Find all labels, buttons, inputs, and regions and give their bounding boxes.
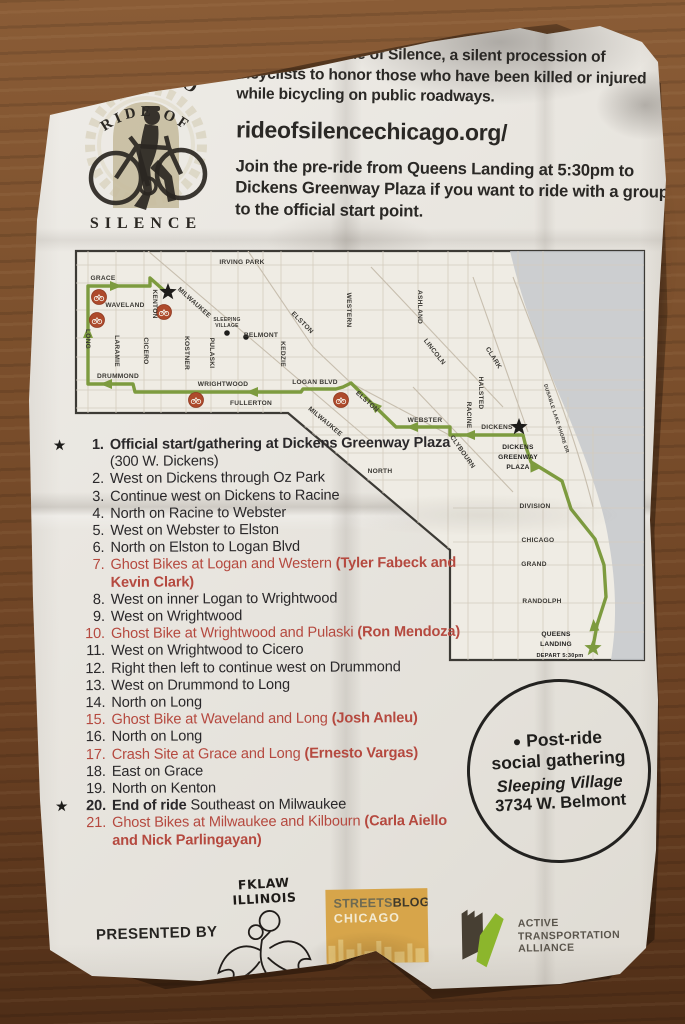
- step-number: 19.: [77, 781, 112, 798]
- step-number: 11.: [76, 643, 111, 660]
- website-url: rideofsilencechicago.org/: [236, 116, 672, 148]
- step-text: East on Grace: [112, 762, 475, 781]
- fklaw-logo-text: FKLAW ILLINOIS: [203, 873, 324, 909]
- post-ride-circle: ●Post-ride social gathering Sleeping Vil…: [462, 674, 655, 867]
- map-street-label: RACINE: [465, 402, 472, 429]
- ata-logo-icon: [457, 901, 508, 974]
- step-number: 15.: [76, 712, 111, 729]
- logo-silence: SILENCE: [90, 215, 202, 232]
- map-street-label: VILLAGE: [215, 323, 239, 329]
- map-street-label: WAVELAND: [105, 302, 144, 309]
- map-street-label: CICERO: [142, 337, 149, 364]
- map-street-label: KOSTNER: [183, 336, 190, 370]
- step-text: West on Drummond to Long: [111, 676, 474, 695]
- map-street-label: PULASKI: [208, 338, 215, 369]
- step-text: North on Elston to Logan Blvd: [110, 538, 473, 557]
- post-ride-line2: social gathering: [491, 747, 626, 775]
- map-street-label: BELMONT: [244, 332, 278, 339]
- map-street-label: ASHLAND: [416, 290, 423, 324]
- step-text: Crash Site at Grace and Long (Ernesto Va…: [112, 744, 475, 763]
- step-text: Ghost Bike at Waveland and Long (Josh An…: [111, 710, 474, 729]
- step-text: Continue west on Dickens to Racine: [110, 486, 473, 505]
- step-number: 13.: [76, 678, 111, 695]
- map-place-label: GREENWAY: [498, 454, 538, 461]
- map-place-label: PLAZA: [506, 464, 529, 471]
- ghost-bike-marker: [90, 313, 105, 328]
- map-street-label: WEBSTER: [408, 417, 443, 424]
- step-text: West on Webster to Elston: [110, 521, 473, 540]
- step-number: 5.: [75, 523, 110, 540]
- step-number: 21.: [77, 815, 112, 832]
- map-street-label: LARAMIE: [113, 335, 120, 367]
- fklaw-logo: FKLAW ILLINOIS: [204, 875, 326, 1012]
- bullet-dot-icon: ●: [512, 733, 521, 749]
- streetsblog-chicago: CHICAGO: [326, 909, 428, 926]
- pre-ride-paragraph: Join the pre-ride from Queens Landing at…: [235, 155, 672, 225]
- ghost-bike-marker: [189, 393, 204, 408]
- step-text: Right then left to continue west on Drum…: [111, 658, 474, 677]
- step-text: West on inner Logan to Wrightwood: [111, 590, 474, 609]
- step-number: 3.: [75, 489, 110, 506]
- step-number: 12.: [76, 661, 111, 678]
- map-street-label: WRIGHTWOOD: [198, 381, 248, 388]
- step-number: 14.: [76, 695, 111, 712]
- step-text: North on Long: [111, 693, 474, 712]
- header-text-block: The Chicago Ride of Silence, a silent pr…: [235, 43, 673, 224]
- map-place-label: DICKENS: [502, 444, 534, 451]
- map-street-label: GRACE: [90, 275, 115, 282]
- step-text: West on Wrightwood to Cicero: [111, 641, 474, 660]
- skyline-graphic: [326, 936, 428, 964]
- streetsblog-logo: STREETSBLOG CHICAGO: [325, 888, 428, 964]
- route-step: 7.Ghost Bikes at Logan and Western (Tyle…: [53, 555, 473, 592]
- active-transportation-alliance-logo: ACTIVE TRANSPORTATION ALLIANCE: [457, 898, 658, 973]
- start-end-star-icon: ★: [55, 798, 77, 815]
- step-number: 1.: [75, 437, 110, 454]
- step-number: 17.: [77, 747, 112, 764]
- poi-dot: [224, 330, 230, 336]
- turn-by-turn-list: ★1.Official start/gathering at Dickens G…: [53, 435, 476, 850]
- map-place-label: LANDING: [540, 641, 572, 648]
- step-number: 4.: [75, 506, 110, 523]
- logo-arc-chicago: CHICAGO: [89, 62, 204, 99]
- map-street-label: GRAND: [521, 561, 546, 568]
- flyer-paper: CHICAGO RIDE OF SILENCE The Chicago Ride…: [0, 0, 685, 1024]
- step-text: End of ride Southeast on Milwaukee: [112, 796, 475, 815]
- map-street-label: IRVING PARK: [219, 259, 264, 266]
- step-text: Ghost Bikes at Milwaukee and Kilbourn (C…: [112, 813, 475, 850]
- map-street-label: LOGAN BLVD: [292, 379, 338, 386]
- step-text: Ghost Bikes at Logan and Western (Tyler …: [110, 555, 473, 592]
- step-number: 8.: [76, 592, 111, 609]
- step-number: 2.: [75, 471, 110, 488]
- map-street-label: KENTON: [151, 289, 158, 318]
- map-street-label: DIVISION: [520, 503, 551, 510]
- step-number: 6.: [75, 540, 110, 557]
- step-text: North on Long: [112, 727, 475, 746]
- step-number: 10.: [76, 626, 111, 643]
- map-street-label: LONG: [84, 329, 91, 349]
- step-text: West on Dickens through Oz Park: [110, 469, 473, 488]
- step-text: North on Racine to Webster: [110, 504, 473, 523]
- step-number: 16.: [77, 729, 112, 746]
- streetsblog-wordmark: STREETSBLOG: [325, 888, 427, 911]
- step-number: 7.: [75, 557, 110, 574]
- map-street-label: FULLERTON: [230, 400, 272, 407]
- step-text: Official start/gathering at Dickens Gree…: [110, 435, 473, 472]
- map-street-label: DRUMMOND: [97, 373, 139, 380]
- map-street-label: WESTERN: [345, 293, 352, 328]
- winged-figure-icon: [209, 905, 321, 1007]
- map-place-label: QUEENS: [541, 631, 571, 638]
- map-place-label: DEPART 5:30pm: [537, 653, 584, 659]
- step-number: 9.: [76, 609, 111, 626]
- step-text: West on Wrightwood: [111, 607, 474, 626]
- map-street-label: HALSTED: [477, 377, 484, 410]
- map-street-label: KEDZIE: [279, 341, 286, 367]
- presented-by-label: PRESENTED BY: [96, 923, 218, 943]
- map-street-label: CHICAGO: [522, 537, 555, 544]
- step-text: Ghost Bike at Wrightwood and Pulaski (Ro…: [111, 624, 474, 643]
- route-step: 21.Ghost Bikes at Milwaukee and Kilbourn…: [55, 813, 475, 850]
- route-step: ★1.Official start/gathering at Dickens G…: [53, 435, 473, 472]
- ghost-bike-marker: [92, 290, 107, 305]
- step-text: North on Kenton: [112, 779, 475, 798]
- intro-paragraph: The Chicago Ride of Silence, a silent pr…: [236, 43, 673, 110]
- start-end-star-icon: ★: [53, 437, 75, 454]
- step-number: 20.: [77, 798, 112, 815]
- ata-logo-text: ACTIVE TRANSPORTATION ALLIANCE: [518, 916, 621, 955]
- ride-of-silence-logo: CHICAGO RIDE OF SILENCE: [80, 40, 212, 238]
- map-street-label: RANDOLPH: [522, 598, 561, 605]
- step-number: 18.: [77, 764, 112, 781]
- ghost-bike-marker: [334, 393, 349, 408]
- map-street-label: DICKENS: [481, 424, 513, 431]
